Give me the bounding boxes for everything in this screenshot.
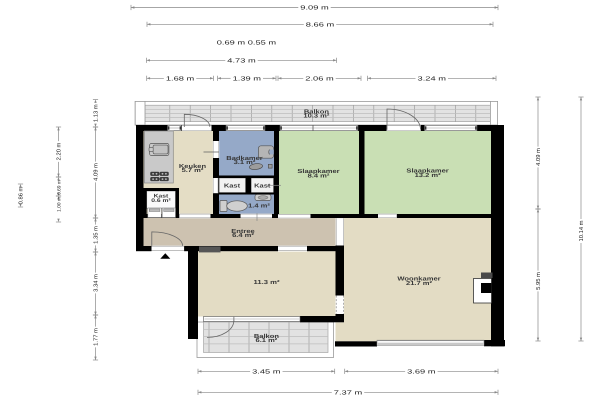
svg-text:1.77 m: 1.77 m (93, 328, 99, 346)
svg-text:7.37 m: 7.37 m (334, 389, 362, 396)
svg-text:1.68 m: 1.68 m (166, 75, 194, 82)
svg-text:11.3 m²: 11.3 m² (254, 279, 280, 286)
svg-text:9.09 m: 9.09 m (300, 5, 328, 12)
svg-text:1.4 m²: 1.4 m² (248, 203, 270, 210)
svg-text:4.09 m: 4.09 m (92, 163, 99, 181)
svg-text:1.00 m: 1.00 m (56, 197, 62, 212)
svg-text:0.6 m²: 0.6 m² (151, 198, 171, 204)
svg-text:8.66 m: 8.66 m (306, 21, 334, 28)
svg-text:Kast: Kast (254, 183, 270, 189)
svg-text:1.35 m: 1.35 m (92, 226, 99, 244)
svg-text:0.69 m: 0.69 m (56, 180, 62, 195)
svg-text:5.95 m: 5.95 m (535, 272, 542, 290)
svg-text:8.4 m²: 8.4 m² (308, 172, 330, 179)
svg-text:13.2 m²: 13.2 m² (415, 172, 441, 179)
svg-text:3.45 m: 3.45 m (252, 368, 280, 375)
svg-text:10.14 m: 10.14 m (578, 220, 585, 241)
svg-text:3.1 m²: 3.1 m² (234, 159, 256, 166)
svg-text:10.3 m²: 10.3 m² (303, 113, 329, 120)
svg-text:4.73 m: 4.73 m (227, 57, 255, 64)
svg-text:2.06 m: 2.06 m (305, 75, 333, 82)
svg-text:3.24 m: 3.24 m (418, 75, 446, 82)
svg-text:3.69 m: 3.69 m (407, 368, 435, 375)
svg-text:1.13 m: 1.13 m (92, 104, 99, 122)
svg-text:Kast: Kast (224, 183, 240, 189)
svg-text:6.4 m²: 6.4 m² (232, 232, 254, 239)
svg-text:3.34 m: 3.34 m (92, 274, 99, 292)
svg-text:0.86 m: 0.86 m (17, 186, 24, 204)
svg-text:4.09 m: 4.09 m (535, 148, 542, 166)
svg-text:2.20 m: 2.20 m (55, 142, 62, 160)
svg-text:5.7 m²: 5.7 m² (182, 167, 204, 174)
svg-text:1.39 m: 1.39 m (233, 75, 261, 82)
svg-text:6.1 m²: 6.1 m² (256, 337, 278, 344)
svg-text:21.7 m²: 21.7 m² (406, 280, 432, 287)
svg-text:0.69 m 0.55 m: 0.69 m 0.55 m (217, 39, 276, 46)
